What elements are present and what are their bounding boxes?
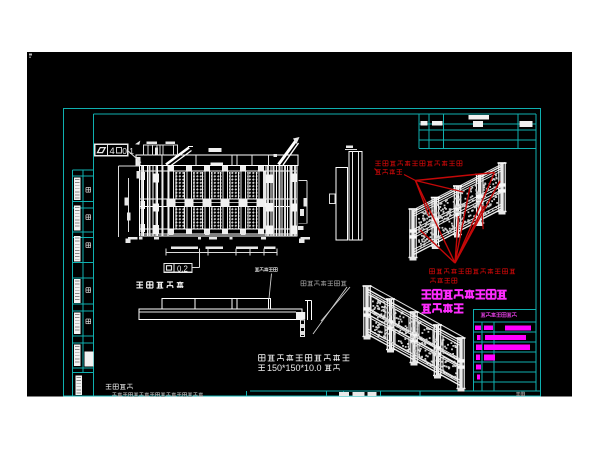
svg-text:0.2: 0.2 [177, 264, 188, 273]
svg-text:4: 4 [110, 145, 115, 156]
svg-text:150*150*10.0: 150*150*10.0 [267, 363, 322, 373]
